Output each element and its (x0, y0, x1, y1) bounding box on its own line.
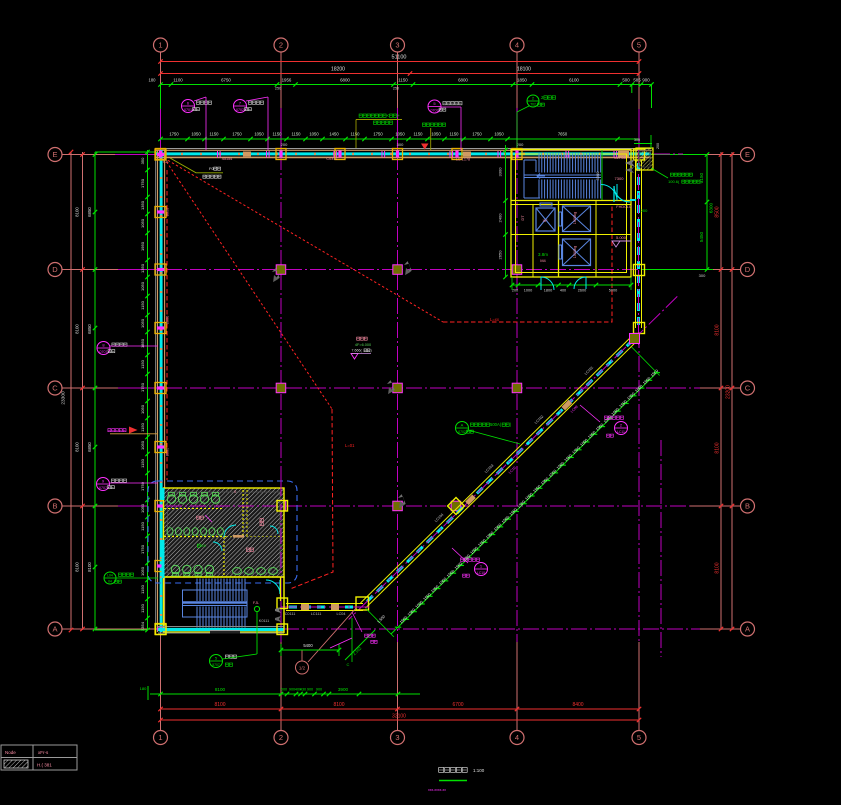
svg-text:1350: 1350 (140, 263, 145, 273)
svg-text:1150: 1150 (413, 132, 423, 137)
svg-text:300: 300 (397, 142, 404, 147)
svg-text:8100: 8100 (715, 442, 721, 453)
svg-text:500: 500 (281, 688, 287, 692)
svg-text:250: 250 (393, 87, 399, 91)
svg-text:C: C (745, 384, 751, 393)
svg-text:C: C (52, 384, 58, 393)
svg-text:0707: 0707 (100, 350, 108, 354)
svg-text:1150: 1150 (272, 132, 282, 137)
svg-text:1050: 1050 (140, 404, 145, 414)
svg-text:1050: 1050 (140, 566, 145, 576)
svg-text:400: 400 (560, 289, 566, 293)
svg-text:6750: 6750 (221, 78, 231, 83)
svg-text:1/2: 1/2 (299, 666, 306, 671)
svg-text:E: E (52, 150, 57, 159)
svg-text:6800: 6800 (458, 78, 468, 83)
svg-text:1750: 1750 (140, 544, 145, 554)
svg-text:): ) (371, 349, 372, 353)
svg-text:A: A (745, 625, 750, 634)
svg-text:1150: 1150 (140, 584, 145, 593)
svg-text:M4: M4 (540, 258, 546, 263)
svg-text:1150: 1150 (140, 300, 145, 309)
svg-text:1750: 1750 (373, 132, 383, 137)
svg-text:C0111: C0111 (285, 612, 296, 616)
svg-text:45154: 45154 (222, 157, 233, 161)
svg-text:23200: 23200 (726, 385, 732, 399)
svg-text:C0317: C0317 (326, 157, 337, 161)
svg-text:1050: 1050 (140, 503, 145, 513)
svg-text:A: A (52, 625, 57, 634)
svg-text:200: 200 (517, 142, 524, 147)
svg-text:200: 200 (281, 142, 288, 147)
svg-text:1: 1 (158, 41, 162, 50)
svg-text:1150: 1150 (140, 422, 145, 431)
svg-text:2650: 2650 (498, 250, 503, 260)
svg-text:500: 500 (622, 78, 630, 83)
svg-text:D: D (52, 265, 58, 274)
svg-text:8100: 8100 (715, 562, 721, 573)
svg-text:8100: 8100 (75, 207, 80, 217)
svg-text:6850: 6850 (87, 442, 92, 452)
svg-text:XF: XF (542, 218, 548, 223)
svg-text:3900: 3900 (338, 687, 349, 692)
svg-text:430: 430 (300, 688, 306, 692)
svg-text:2: 2 (279, 41, 283, 50)
svg-text:2600: 2600 (578, 289, 586, 293)
svg-text:1850: 1850 (140, 338, 145, 348)
svg-text:1750: 1750 (140, 178, 145, 188)
svg-text:0701: 0701 (184, 108, 192, 112)
svg-text:1050: 1050 (140, 281, 145, 291)
svg-text:6100: 6100 (569, 78, 579, 83)
svg-text:6700: 6700 (452, 702, 463, 708)
svg-text:0702: 0702 (458, 430, 466, 434)
svg-text:250: 250 (275, 87, 281, 91)
svg-text:100.6(: 100.6( (668, 179, 680, 184)
svg-text:1150: 1150 (449, 132, 459, 137)
svg-text:0702: 0702 (236, 108, 244, 112)
svg-text:H.( 381: H.( 381 (37, 763, 52, 768)
svg-text:1850: 1850 (517, 78, 527, 83)
svg-text:LC04: LC04 (336, 612, 345, 616)
svg-text:1:100: 1:100 (473, 768, 485, 773)
svg-text:1150: 1150 (140, 458, 145, 467)
svg-text:xFr-s: xFr-s (38, 750, 49, 755)
svg-text:6300: 6300 (709, 202, 714, 213)
svg-text:1050: 1050 (309, 132, 319, 137)
svg-text:1050: 1050 (140, 218, 145, 228)
svg-text:04: 04 (108, 580, 112, 584)
svg-text:1150: 1150 (398, 78, 408, 83)
svg-text:XX: XX (201, 543, 207, 548)
svg-text:A: A (461, 423, 464, 428)
svg-text:2: 2 (279, 733, 283, 742)
svg-text:500A(: 500A( (490, 422, 502, 427)
svg-text:B: B (745, 502, 750, 511)
svg-text:L=01: L=01 (345, 443, 355, 448)
svg-text:1000kg: 1000kg (573, 246, 577, 258)
svg-text:1750: 1750 (472, 132, 482, 137)
svg-text:200: 200 (641, 208, 648, 213)
svg-text:1050: 1050 (140, 318, 145, 328)
svg-text:5000: 5000 (609, 289, 617, 293)
svg-text:8100: 8100 (214, 702, 225, 708)
svg-text:1750: 1750 (232, 132, 242, 137)
svg-text:LC111: LC111 (311, 612, 322, 616)
svg-text:1050: 1050 (254, 132, 264, 137)
svg-text:D: D (745, 265, 751, 274)
svg-text:1000kg: 1000kg (573, 212, 577, 224)
svg-text:200: 200 (656, 143, 660, 149)
svg-text:8100: 8100 (215, 687, 226, 692)
svg-text:900: 900 (642, 78, 650, 83)
svg-text:LC L178: LC L178 (456, 158, 470, 162)
svg-text:6850: 6850 (87, 207, 92, 217)
svg-text:1050: 1050 (494, 132, 504, 137)
svg-text:1956: 1956 (282, 78, 292, 83)
svg-text:1100: 1100 (173, 78, 183, 83)
svg-text:LC10: LC10 (477, 571, 485, 575)
svg-text:8100: 8100 (75, 324, 80, 334)
svg-text:200: 200 (512, 289, 518, 293)
svg-text:xxx-xxxx-xx: xxx-xxxx-xx (428, 788, 446, 792)
svg-text:8100: 8100 (333, 702, 344, 708)
svg-text:T02: T02 (530, 103, 536, 107)
svg-text:1150: 1150 (140, 521, 145, 530)
svg-text:6800: 6800 (340, 78, 350, 83)
svg-text:0703: 0703 (431, 109, 439, 113)
svg-text:32100: 32100 (392, 714, 406, 720)
svg-text:1050: 1050 (140, 440, 145, 450)
svg-text:3.8m: 3.8m (538, 252, 548, 257)
svg-text:4: 4 (515, 41, 519, 50)
svg-text:1450: 1450 (329, 132, 339, 137)
svg-text:300: 300 (634, 138, 640, 142)
svg-text:1150: 1150 (209, 132, 219, 137)
svg-text:DT: DT (520, 215, 525, 221)
svg-text:4: 4 (515, 733, 519, 742)
svg-text:K0111: K0111 (259, 619, 269, 623)
svg-text:5450: 5450 (699, 231, 704, 242)
svg-text:4F=6.000: 4F=6.000 (355, 343, 371, 347)
svg-text:1350: 1350 (140, 200, 145, 210)
svg-text:5.000: 5.000 (616, 235, 627, 240)
svg-text:3300: 3300 (595, 171, 600, 181)
svg-text:300: 300 (699, 273, 706, 278)
svg-text:7300: 7300 (615, 176, 625, 181)
svg-text:1000: 1000 (524, 289, 532, 293)
svg-text:X: X (234, 489, 237, 494)
svg-text:8100: 8100 (75, 442, 80, 452)
svg-text:1750: 1750 (140, 382, 145, 392)
svg-text:1050: 1050 (395, 132, 405, 137)
svg-text:8500: 8500 (715, 206, 721, 217)
svg-text:7.666(: 7.666( (352, 349, 363, 353)
svg-text:1150: 1150 (140, 359, 145, 368)
svg-text:1150: 1150 (291, 132, 301, 137)
svg-text:180: 180 (149, 78, 157, 83)
svg-text:1950: 1950 (140, 241, 145, 251)
svg-text:51100: 51100 (392, 55, 407, 61)
svg-text:18200: 18200 (331, 67, 345, 73)
svg-text:8100: 8100 (715, 324, 721, 335)
svg-text:8100: 8100 (75, 562, 80, 572)
svg-text:1150: 1150 (140, 603, 145, 612)
svg-text:5707: 5707 (212, 663, 220, 667)
svg-text:LC11: LC11 (617, 430, 625, 434)
svg-text:0707: 0707 (99, 486, 107, 490)
svg-text:1050: 1050 (431, 132, 441, 137)
svg-text:C: C (347, 662, 350, 667)
svg-text:3: 3 (395, 733, 399, 742)
svg-text:585: 585 (633, 78, 641, 83)
svg-text:FHDCLU: FHDCLU (616, 205, 632, 209)
svg-text:Node: Node (5, 750, 16, 755)
svg-text:L04: L04 (107, 574, 113, 578)
svg-text:L=xx: L=xx (490, 317, 500, 322)
svg-text:1050: 1050 (191, 132, 201, 137)
svg-text:3: 3 (395, 41, 399, 50)
svg-text:1: 1 (158, 733, 162, 742)
svg-text:900: 900 (316, 688, 322, 692)
svg-text:8400: 8400 (572, 702, 583, 708)
svg-text:FJL: FJL (253, 601, 259, 605)
svg-text:180: 180 (140, 686, 147, 691)
svg-text:2400: 2400 (498, 213, 503, 223)
svg-text:5: 5 (637, 41, 641, 50)
svg-text:8100: 8100 (87, 562, 92, 572)
svg-text:7650: 7650 (558, 132, 568, 137)
svg-text:350: 350 (140, 157, 145, 164)
svg-text:L2F08: L2F08 (614, 155, 626, 160)
svg-text:6850: 6850 (87, 324, 92, 334)
svg-text:5: 5 (637, 733, 641, 742)
svg-text:1150: 1150 (350, 132, 360, 137)
svg-text:23300: 23300 (61, 391, 67, 405)
svg-text:E: E (745, 150, 750, 159)
svg-text:B: B (52, 502, 57, 511)
svg-text:5400: 5400 (303, 643, 313, 648)
svg-text:1800: 1800 (544, 289, 552, 293)
svg-text:900: 900 (307, 688, 313, 692)
svg-text:3300: 3300 (498, 167, 503, 177)
svg-text:1750: 1750 (169, 132, 179, 137)
svg-text:18100: 18100 (517, 67, 531, 73)
